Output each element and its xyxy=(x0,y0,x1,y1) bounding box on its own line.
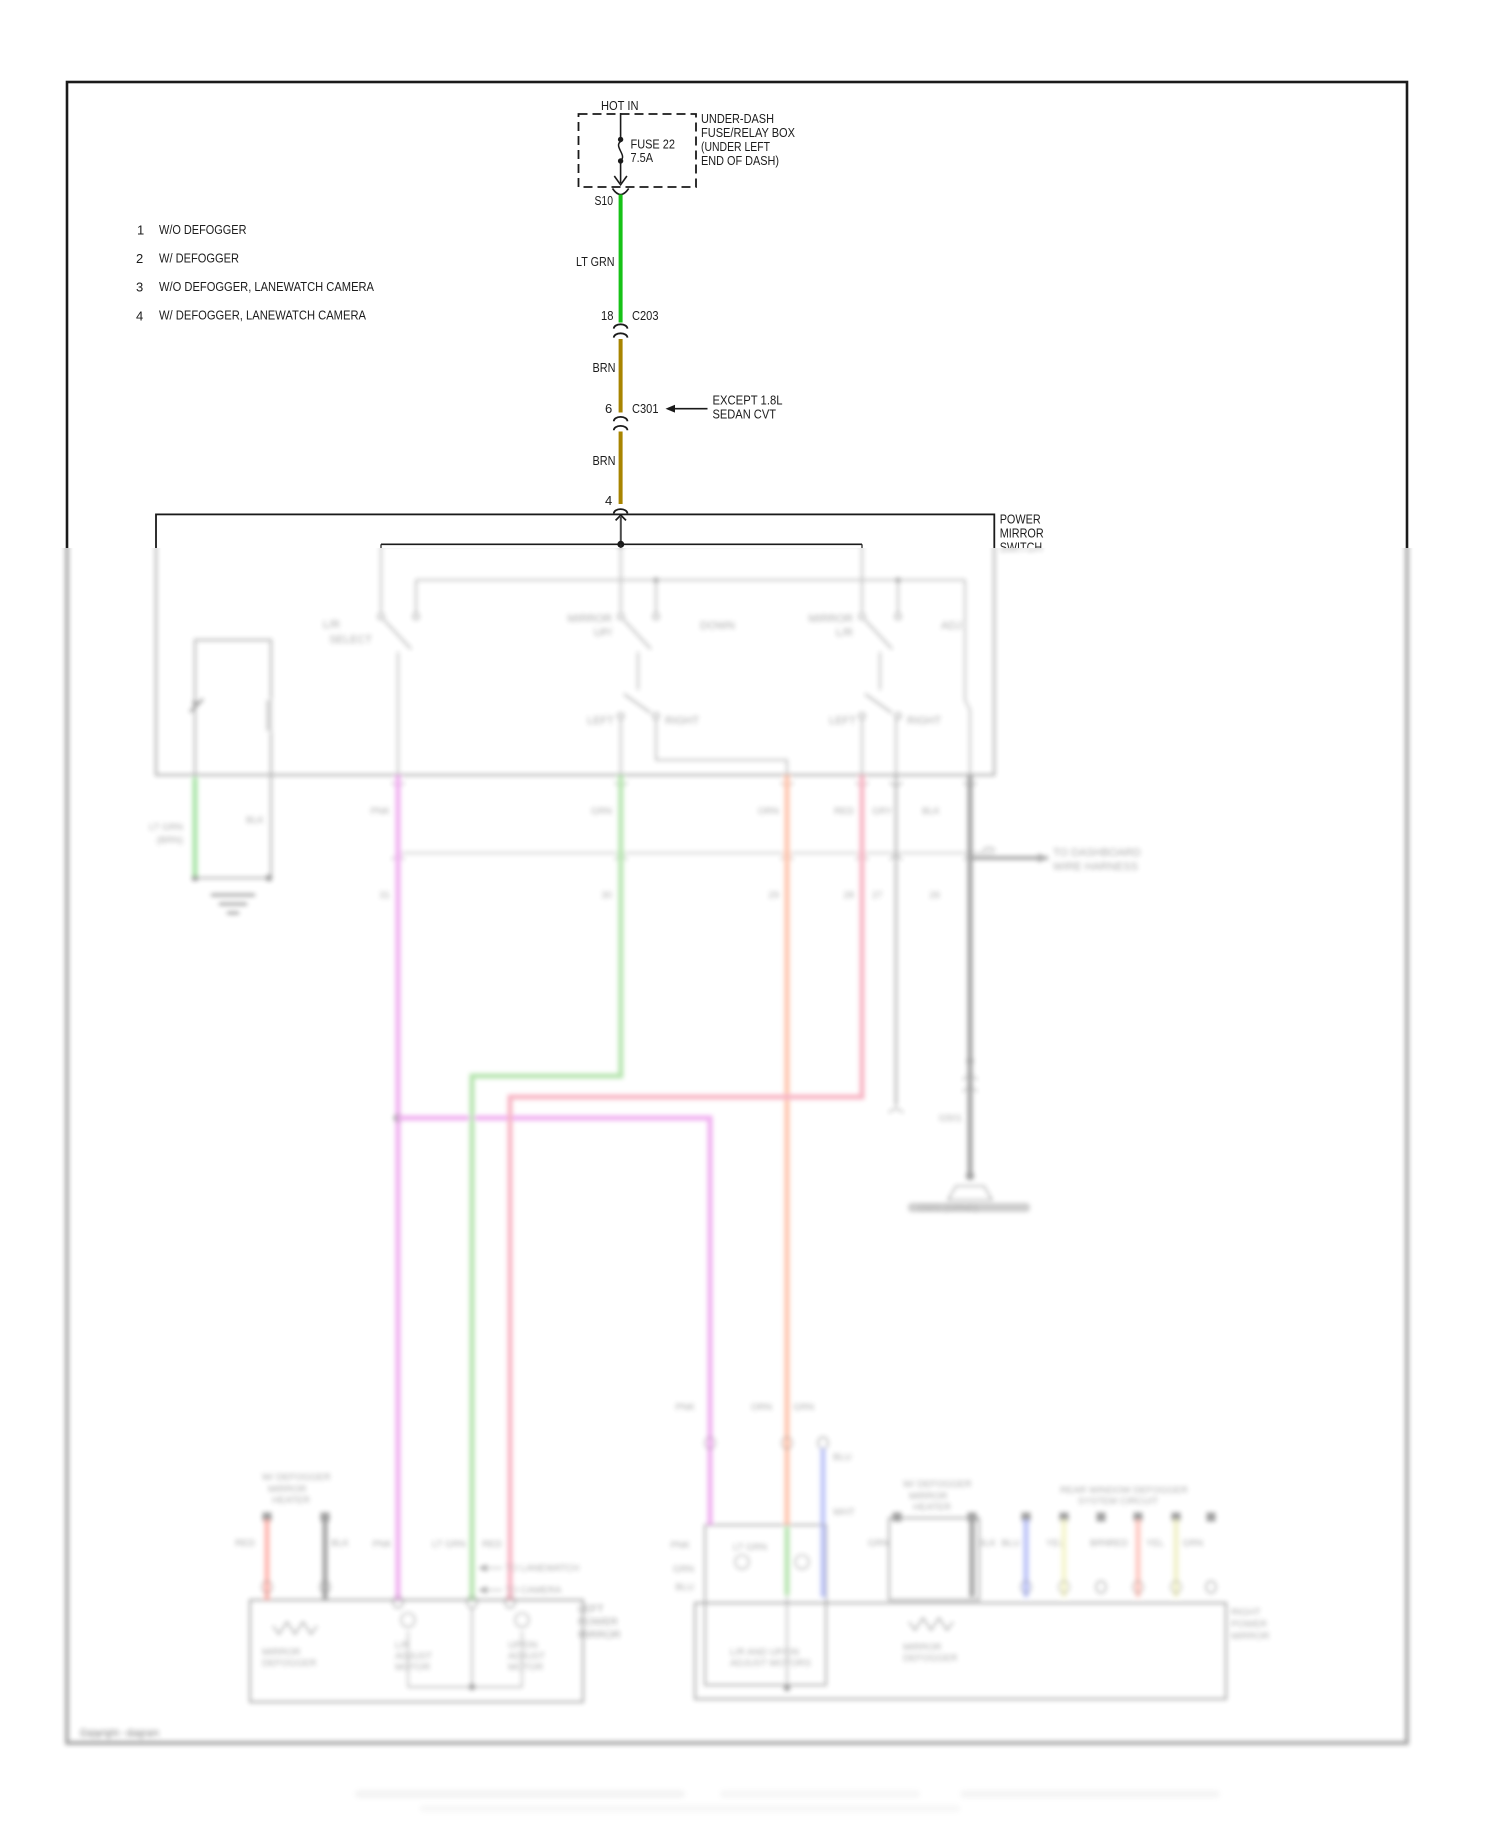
svg-text:Copyright - diagram: Copyright - diagram xyxy=(80,1727,159,1737)
